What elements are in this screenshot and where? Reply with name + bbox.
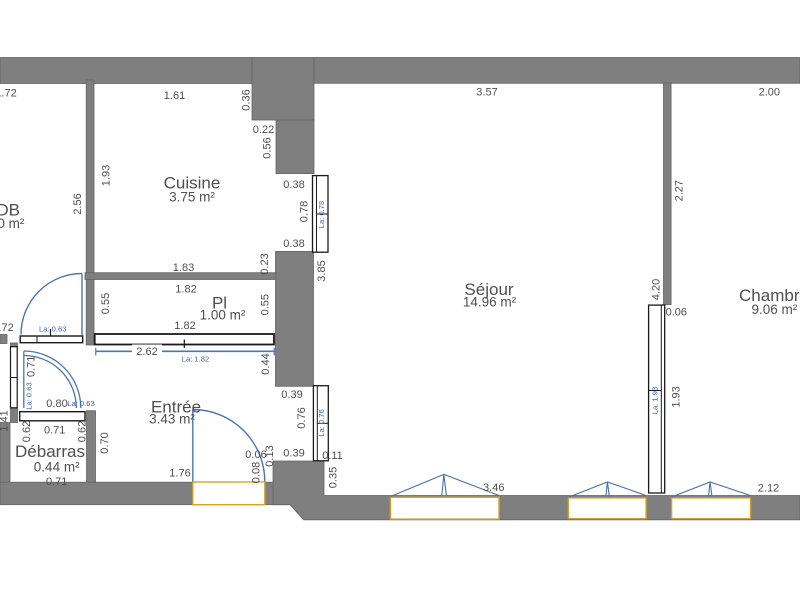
svg-text:2.56: 2.56 [72, 193, 84, 214]
svg-text:0.08: 0.08 [251, 462, 263, 483]
svg-text:0.78: 0.78 [299, 201, 311, 222]
svg-text:0.76: 0.76 [296, 407, 308, 428]
svg-text:14.96 m²: 14.96 m² [463, 295, 517, 310]
svg-text:2.12: 2.12 [758, 482, 779, 494]
svg-text:1.72: 1.72 [0, 88, 17, 100]
svg-text:3.75 m²: 3.75 m² [169, 189, 215, 204]
svg-text:0.62: 0.62 [77, 421, 89, 442]
svg-text:La: 0.63: La: 0.63 [25, 382, 34, 409]
svg-text:0.38: 0.38 [283, 179, 304, 191]
svg-text:1.00 m²: 1.00 m² [200, 308, 246, 323]
svg-text:0.56: 0.56 [262, 137, 274, 158]
svg-text:0.55: 0.55 [260, 294, 272, 315]
svg-text:3.85: 3.85 [316, 260, 328, 281]
svg-text:La: 0.63: La: 0.63 [67, 399, 94, 408]
svg-text:Débarras: Débarras [15, 442, 85, 461]
svg-text:3.43 m²: 3.43 m² [149, 412, 195, 427]
svg-text:0.55: 0.55 [100, 293, 112, 314]
svg-text:0.44 m²: 0.44 m² [34, 460, 80, 475]
svg-text:1.82: 1.82 [175, 284, 196, 296]
svg-text:1.76: 1.76 [169, 468, 190, 480]
svg-text:0.35: 0.35 [328, 467, 340, 488]
svg-text:1.61: 1.61 [164, 90, 185, 102]
svg-text:2.27: 2.27 [674, 180, 686, 201]
svg-text:0.22: 0.22 [253, 124, 274, 136]
svg-text:La: 1.93: La: 1.93 [651, 387, 660, 414]
svg-text:0.06: 0.06 [666, 307, 687, 319]
svg-text:0.44: 0.44 [260, 353, 272, 374]
svg-text:0.11: 0.11 [322, 450, 343, 462]
svg-text:0.36: 0.36 [241, 89, 253, 110]
svg-text:3.57: 3.57 [476, 87, 497, 99]
svg-text:1.93: 1.93 [101, 165, 113, 186]
svg-text:9.06 m²: 9.06 m² [752, 302, 798, 317]
svg-text:0.39: 0.39 [283, 447, 304, 459]
svg-text:0.23: 0.23 [259, 253, 271, 274]
svg-text:2.00: 2.00 [759, 87, 780, 99]
svg-text:2.62: 2.62 [136, 346, 157, 358]
svg-text:1.93: 1.93 [670, 386, 682, 407]
svg-text:0.71: 0.71 [46, 476, 67, 488]
svg-text:La: 0.78: La: 0.78 [317, 201, 326, 228]
svg-text:La: 0.76: La: 0.76 [317, 409, 326, 436]
svg-text:0.13: 0.13 [264, 445, 276, 466]
svg-text:1.72: 1.72 [0, 322, 14, 334]
svg-text:2.50 m²: 2.50 m² [0, 216, 25, 231]
svg-text:1.83: 1.83 [173, 262, 194, 274]
svg-text:0.70: 0.70 [99, 432, 111, 453]
svg-text:1.82: 1.82 [174, 320, 195, 332]
svg-text:3.46: 3.46 [483, 482, 504, 494]
svg-text:0.71: 0.71 [25, 356, 37, 377]
svg-text:0.71: 0.71 [44, 425, 65, 437]
svg-text:0.62: 0.62 [21, 421, 33, 442]
svg-text:1.41: 1.41 [0, 410, 11, 431]
svg-text:La: 0.63: La: 0.63 [39, 324, 66, 333]
svg-text:0.38: 0.38 [283, 238, 304, 250]
svg-text:0.80: 0.80 [46, 398, 67, 410]
svg-text:4.20: 4.20 [651, 279, 663, 300]
svg-text:La: 1.82: La: 1.82 [182, 355, 209, 364]
svg-text:0.39: 0.39 [281, 389, 302, 401]
